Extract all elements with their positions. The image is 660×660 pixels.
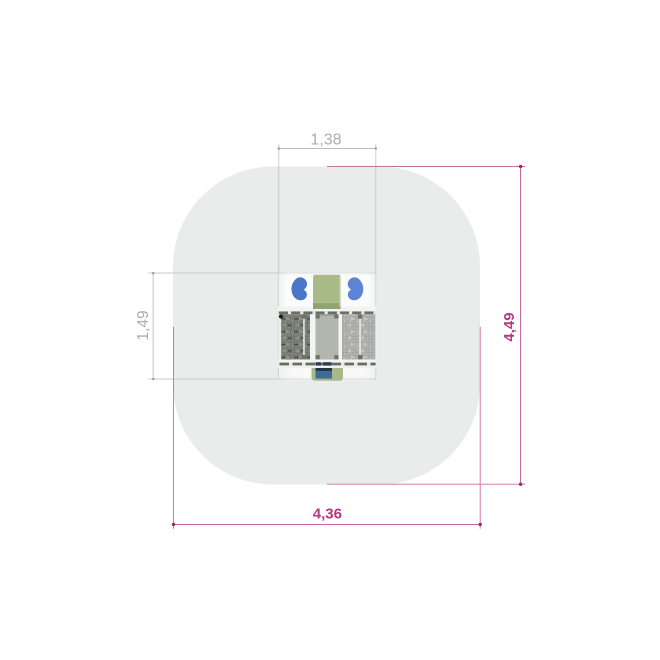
svg-text:4,49: 4,49: [501, 312, 518, 341]
svg-text:1,49: 1,49: [135, 310, 152, 340]
svg-text:1,38: 1,38: [310, 132, 341, 149]
svg-text:4,36: 4,36: [313, 506, 342, 523]
